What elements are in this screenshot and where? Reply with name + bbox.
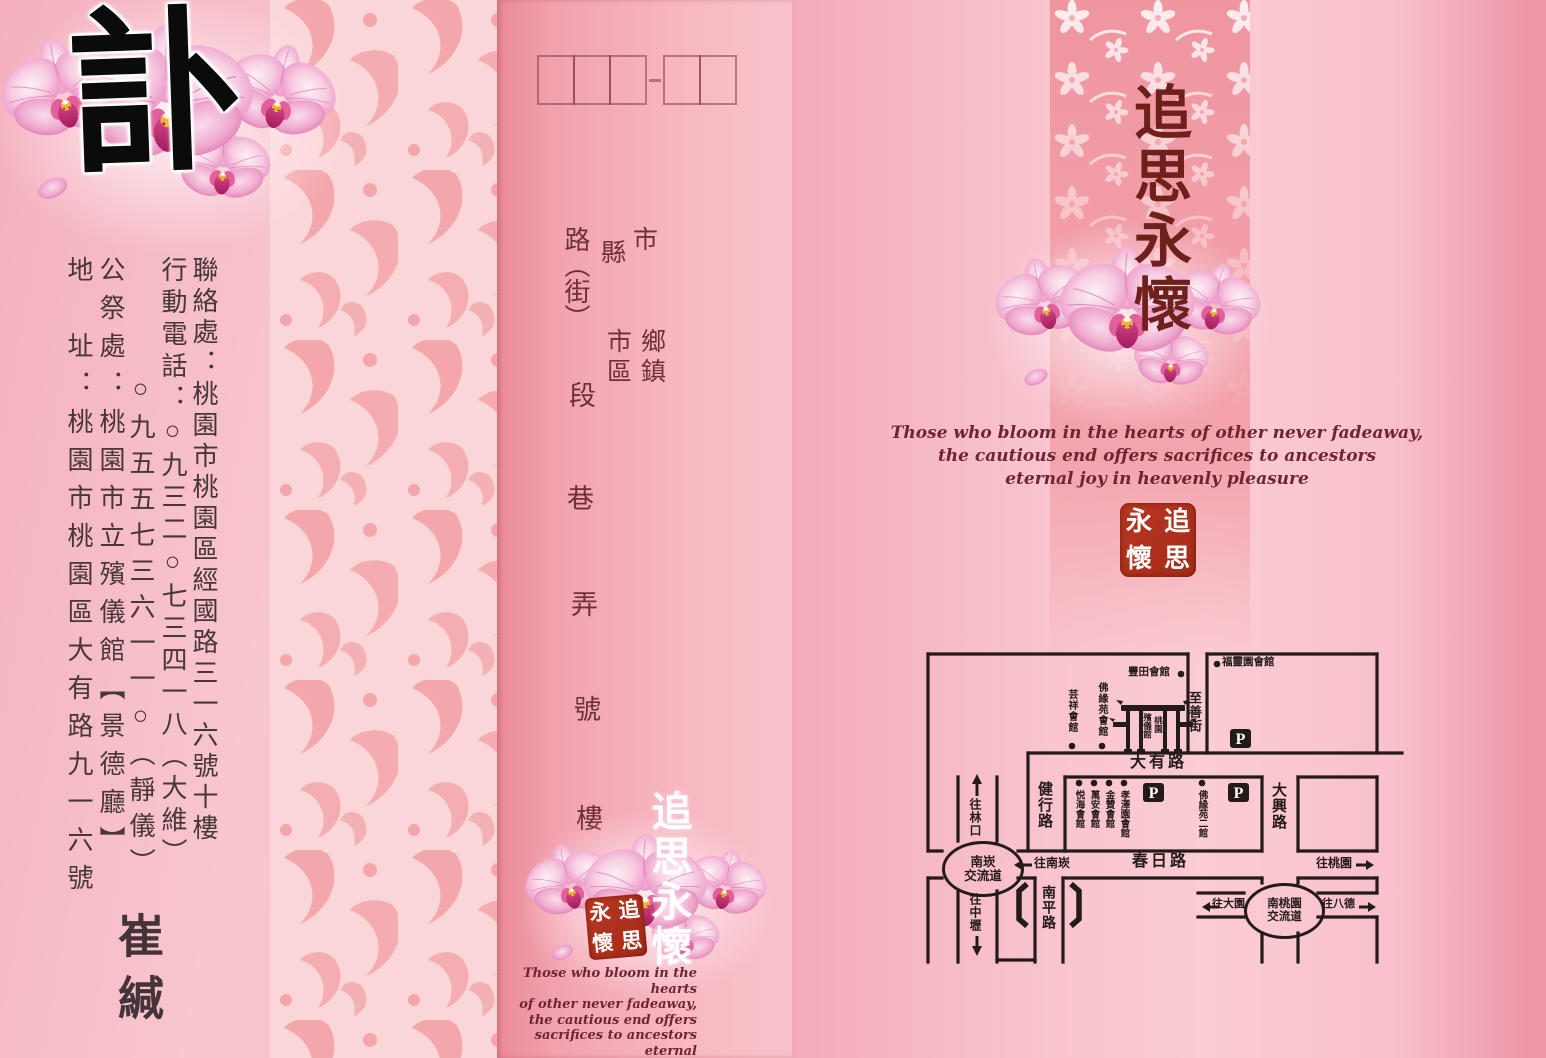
interchange-name: 交流道 xyxy=(964,869,1002,883)
english-verse: Those who bloom in the hearts of other n… xyxy=(867,422,1447,491)
map-direction-linkou: 往林口 xyxy=(969,798,981,837)
map-interchange-nankan: 南崁 交流道 xyxy=(942,841,1024,897)
parking-icon: P xyxy=(1230,729,1251,748)
parking-icon: P xyxy=(1143,783,1164,802)
memorial-title: 追思永懷 xyxy=(647,790,688,970)
family-signature: 崔緘 xyxy=(104,912,170,1036)
map-venue-label-fengtian: 豐田會館 xyxy=(1128,668,1170,679)
map-direction-nankan: 往南崁 xyxy=(1034,857,1070,869)
memorial-title: 追思永懷 xyxy=(1128,82,1186,338)
address-line: 地 址：桃園市桃園區大有路九一六號 xyxy=(65,256,91,902)
addr-section-label: 段 xyxy=(569,383,596,410)
svg-text:P: P xyxy=(1149,785,1159,802)
map-road-label-daxing: 大興路 xyxy=(1270,782,1285,830)
contact-office-line: 聯絡處：桃園市桃園區經國路三一六號十樓 xyxy=(190,256,216,845)
seal-char: 永 xyxy=(1126,509,1152,535)
addr-county-label: 縣 xyxy=(601,241,626,266)
memorial-seal: 永 追 懷 思 xyxy=(1120,503,1196,577)
seal-char: 懷 xyxy=(1126,546,1152,572)
seal-char: 思 xyxy=(1164,546,1190,572)
mobile-phone-line-1: 行動電話：○九三二○七三四一八（大維） xyxy=(159,256,185,870)
funeral-home-gate-icon xyxy=(1109,700,1197,754)
verse-line: of other never fadeaway, xyxy=(512,997,697,1013)
mobile-phone-line-2: ○九五五七三六一一○（靜儀） xyxy=(127,374,153,884)
map-direction-zhongli: 往中壢 xyxy=(969,893,981,932)
map-venue-label-wanan: 萬安會館 xyxy=(1088,790,1098,828)
verse-line: the cautious end offers sacrifices to an… xyxy=(867,445,1447,468)
seal-char: 思 xyxy=(620,930,643,953)
postal-box xyxy=(537,55,575,105)
addr-road-label: 路（街） xyxy=(562,226,588,330)
english-verse: Those who bloom in the hearts of other n… xyxy=(512,966,697,1058)
addr-lane-label: 巷 xyxy=(567,486,594,513)
svg-text:P: P xyxy=(1234,785,1244,802)
obituary-character: 訃 xyxy=(67,5,249,187)
verse-line: Those who bloom in the hearts of other n… xyxy=(867,422,1447,445)
map-direction-taoyuan: 往桃園 xyxy=(1316,857,1352,869)
map-venue-label-foyuan: 佛緣苑會館 xyxy=(1096,682,1106,737)
verse-line: eternal joy in heavenly pleasure xyxy=(867,468,1447,491)
verse-line: Those who bloom in the hearts xyxy=(512,966,697,997)
map-direction-dayuan: 往大園 xyxy=(1212,899,1245,910)
postal-box xyxy=(663,55,701,105)
addr-township-label: 鄉 xyxy=(641,330,666,355)
panel-contact: 訃 聯絡處：桃園市桃園區經國路三一六號十樓 行動電話：○九三二○七三四一八（大維… xyxy=(0,0,497,1058)
memorial-card: 訃 聯絡處：桃園市桃園區經國路三一六號十樓 行動電話：○九三二○七三四一八（大維… xyxy=(0,0,1546,1058)
postal-box xyxy=(573,55,611,105)
map-road-label-chunri: 春日路 xyxy=(1132,854,1189,870)
verse-line: sacrifices to ancestors eternal xyxy=(512,1028,697,1058)
memorial-seal: 永 追 懷 思 xyxy=(584,894,647,961)
public-memorial-line: 公祭處：桃園市立殯儀館【景德廳】 xyxy=(97,256,123,864)
postal-box xyxy=(699,55,737,105)
postal-box xyxy=(609,55,647,105)
interchange-name: 南桃園 xyxy=(1267,898,1302,911)
map-venue-label-foyuan2: 佛緣苑二館 xyxy=(1196,790,1206,838)
addr-alley-label: 弄 xyxy=(571,592,598,619)
map-road-label-jianxing: 健行路 xyxy=(1036,781,1051,829)
panel-cover: 追思永懷 Those who bloom in the hearts of ot… xyxy=(792,0,1546,1058)
interchange-name: 南崁 xyxy=(970,855,995,869)
map-road-label-nanping: 南平路 xyxy=(1040,885,1054,930)
location-map: P P P 豐田會館 福靈園會館 芸祥會館 佛緣苑會館 殯儀館 桃園 至善街 大… xyxy=(925,650,1405,980)
map-venue-label-jinzan: 金贊會館 xyxy=(1103,790,1113,828)
addr-number-label: 號 xyxy=(574,697,601,724)
parking-icon: P xyxy=(1228,783,1249,802)
verse-line: the cautious end offers xyxy=(512,1013,697,1029)
map-venue-label-xiaoze: 孝澤園會館 xyxy=(1118,790,1128,838)
map-interchange-nantaoyuan: 南桃園 交流道 xyxy=(1244,883,1325,939)
seal-char: 追 xyxy=(1164,509,1190,535)
seal-char: 永 xyxy=(589,901,612,924)
addr-town-label: 鎮 xyxy=(641,360,666,385)
map-roads xyxy=(928,654,1402,962)
map-gate-label-taoyuan: 桃園 xyxy=(1154,716,1163,733)
panel-mailing: 市 縣 鄉 鎮 市 區 路（街） 段 巷 弄 號 樓 追思永懷 永 追 懷 思 … xyxy=(497,0,792,1058)
postal-dash xyxy=(649,79,661,82)
map-venue-label-fuling: 福靈園會館 xyxy=(1222,658,1275,669)
map-venue-label-yunxiang: 芸祥會館 xyxy=(1066,689,1076,733)
interchange-name: 交流道 xyxy=(1267,911,1302,924)
svg-text:P: P xyxy=(1236,731,1246,748)
map-gate-label-binyiguan: 殯儀館 xyxy=(1143,713,1152,739)
map-road-label-zhishan: 至善街 xyxy=(1188,691,1201,733)
map-venue-label-yuehai: 悦海會館 xyxy=(1073,790,1083,828)
map-direction-bade: 往八德 xyxy=(1322,899,1355,910)
map-road-label-dayou: 大有路 xyxy=(1130,755,1187,771)
postal-code-boxes xyxy=(537,55,737,105)
seal-char: 懷 xyxy=(592,932,615,955)
addr-city-label: 市 xyxy=(633,228,658,253)
addr-urban-city-label: 市 xyxy=(607,330,632,355)
addr-district-label: 區 xyxy=(607,360,632,385)
seal-char: 追 xyxy=(618,899,641,922)
